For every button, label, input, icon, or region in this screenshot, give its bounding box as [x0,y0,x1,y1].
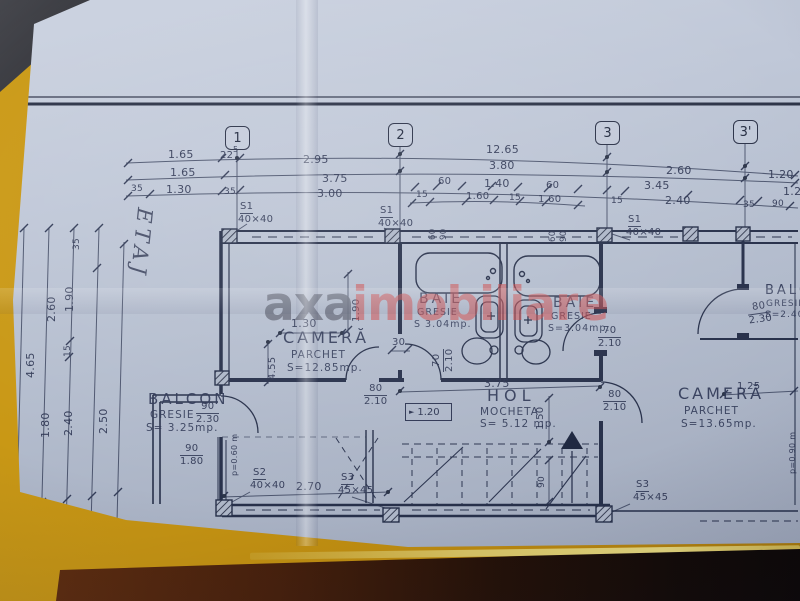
door-height: 1.80 [180,456,203,467]
door-height: 2.10 [364,396,387,407]
paper-crease-horizontal [0,288,800,314]
parapet-note: p=0.90 m [789,432,797,474]
door-height: 2.10 [603,402,626,413]
level-value: 1.20 [417,407,439,418]
walls [153,231,798,521]
dim-label: 1.60 [538,195,561,205]
room-name-hol: HOL [487,388,536,404]
dim-label: 22 [220,151,233,161]
door-size-label: 802.10 [364,384,387,407]
window-spec-s2: S2 [253,468,266,480]
grid-bubble-3prime: 3' [733,120,758,144]
dim-label: 1.40 [484,178,510,189]
window-spec-s3-size: 45×45 [338,486,373,496]
dim-label: 15 [611,197,623,206]
window-spec-s2-size: 40×40 [250,481,285,491]
dim-label: 1.20 [768,169,794,180]
window-spec-s3-size: 45×45 [633,493,668,503]
window-size-90: 90 [560,231,569,242]
grid-bubble-3-label: 3 [603,126,611,141]
window-size-60: 60 [429,229,438,240]
paper-crease-vertical [296,0,318,546]
door-size-label: 902.30 [196,402,219,425]
stairs [222,437,598,509]
dim-label: 60 [438,177,451,187]
room-finish-balcon1: GRESIE [150,410,194,421]
dim-label-vertical: 35 [58,506,67,518]
dim-label-vertical: 1.80 [40,412,51,438]
dim-label: 1.65 [168,149,194,160]
door-width: 90 [180,444,203,456]
door-height: 2.10 [598,338,621,349]
dim-label: 1.30 [166,184,192,195]
door-width: 70 [432,349,444,372]
window-spec-s1: S1 [628,215,641,227]
room-finish-camera2: PARCHET [684,406,739,417]
dim-label-vertical: 1.40 [36,517,46,540]
dim-label: 2.40 [665,195,691,206]
dim-label: 35 [743,201,755,210]
dim-label: 2.60 [666,165,692,176]
window-spec-s1-size: 40×40 [626,228,661,238]
door-size-label: 702.10 [432,349,455,372]
window-spec-s1-size: 40×40 [378,219,413,229]
grid-bubble-1-label: 1 [233,131,241,146]
dim-label-vertical: 4.65 [25,352,36,378]
dim-label-vertical: 4.55 [268,357,278,380]
door-size-label: 901.80 [180,444,203,467]
dim-label: 5 [233,146,238,154]
window-size-90: 90 [440,229,449,240]
room-area-camera2: S=13.65mp. [681,419,757,430]
door-size-label: 802.10 [603,390,626,413]
level-arrow-icon: ► [409,408,414,416]
window-spec-s3: S3 [636,480,649,492]
dim-label: 1.25 [783,186,800,197]
grid-bubble-2: 2 [388,123,413,147]
dim-label: 3.45 [644,180,670,191]
grid-bubble-3: 3 [595,121,620,145]
dim-label: 3.75 [322,173,348,184]
dim-label: 60 [546,181,559,191]
dim-label: 15 [509,194,521,203]
stair-direction-arrow-icon [561,431,583,449]
dim-label: 12.65 [486,144,519,155]
door-height: 2.30 [196,414,219,425]
dim-label: 1.60 [466,192,489,202]
grid-bubble-2-label: 2 [396,128,404,143]
dim-label-vertical: 1.50 [536,407,546,430]
window-size-60: 60 [549,231,558,242]
dim-label: 1.25 [737,382,760,392]
photo-of-floorplan: { "colors":{"paper":"#b9c1d2","ink":"#2b… [0,0,800,601]
dim-label-vertical: 35 [73,238,82,250]
dim-label-vertical: 15 [64,345,73,357]
door-height: 2.10 [444,349,455,372]
window-spec-s1: S1 [240,202,253,214]
dim-label-vertical: 2.50 [98,408,109,434]
dim-label: 3.80 [489,160,515,171]
grid-bubble-3prime-label: 3' [740,125,752,140]
dim-label: 30 [392,338,405,348]
dim-label-vertical: 90 [538,476,547,488]
parapet-note: p=0.60 m [231,434,239,476]
dim-label: 3.75 [484,378,510,389]
door-width: 80 [603,390,626,402]
level-marker: ► 1.20 [405,403,452,421]
dim-label: 35 [224,188,236,197]
door-width: 80 [364,384,387,396]
sheet-border-lines [8,97,800,104]
photo-stage: 1 2 3 3' 1.65 22 5 2.95 12.65 2.60 1.20 … [0,0,800,601]
room-finish-hol: MOCHETA [480,407,539,418]
dim-label: 1.65 [170,167,196,178]
window-spec-s3: S3 [341,473,354,485]
dim-label: 3.00 [317,188,343,199]
dim-label: 15 [416,191,428,200]
window-spec-s1: S1 [380,206,393,218]
dim-label: 90 [772,200,784,209]
dim-label-vertical: 2.40 [63,410,74,436]
door-width: 90 [196,402,219,414]
window-spec-s1-size: 40×40 [238,215,273,225]
dim-label: 35 [131,185,143,194]
